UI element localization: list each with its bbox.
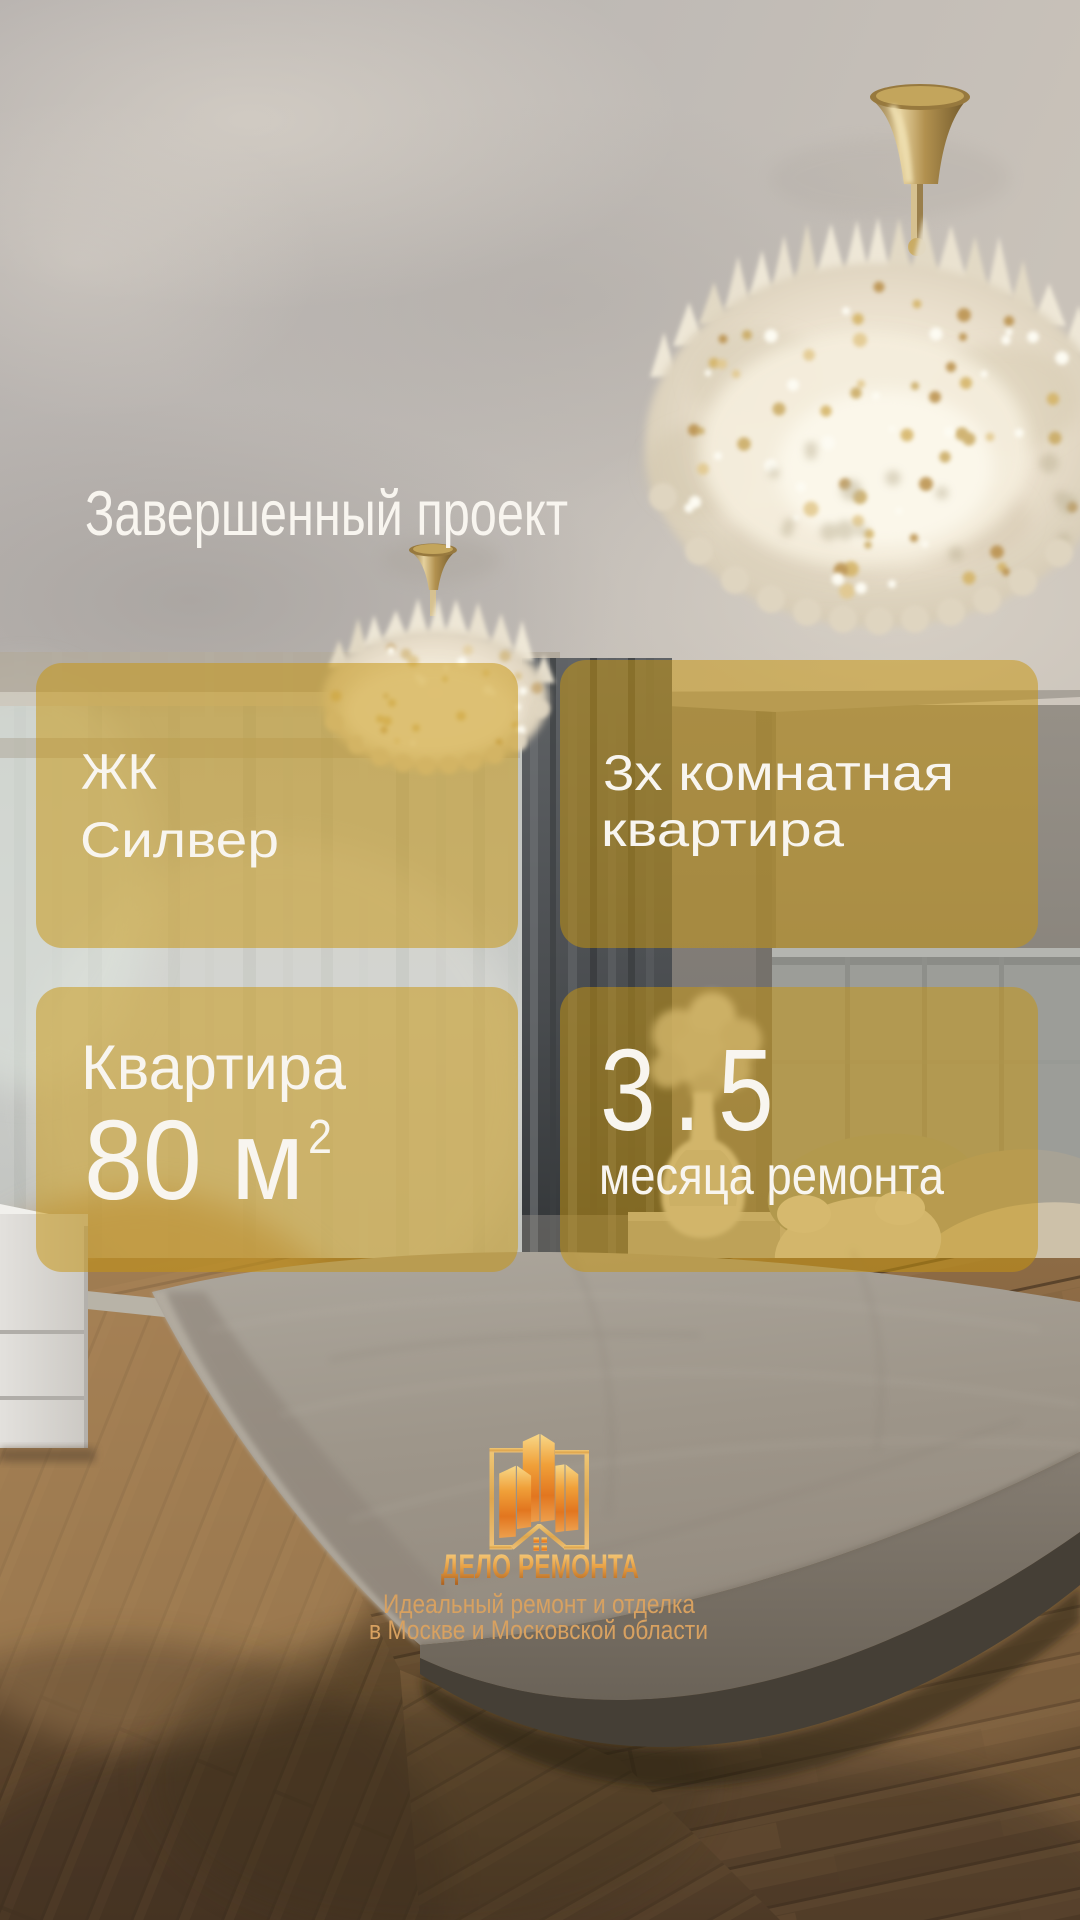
svg-text:в Москве и Московской области: в Москве и Московской области (369, 1615, 708, 1645)
svg-text:ДЕЛО РЕМОНТА: ДЕЛО РЕМОНТА (441, 1548, 639, 1586)
